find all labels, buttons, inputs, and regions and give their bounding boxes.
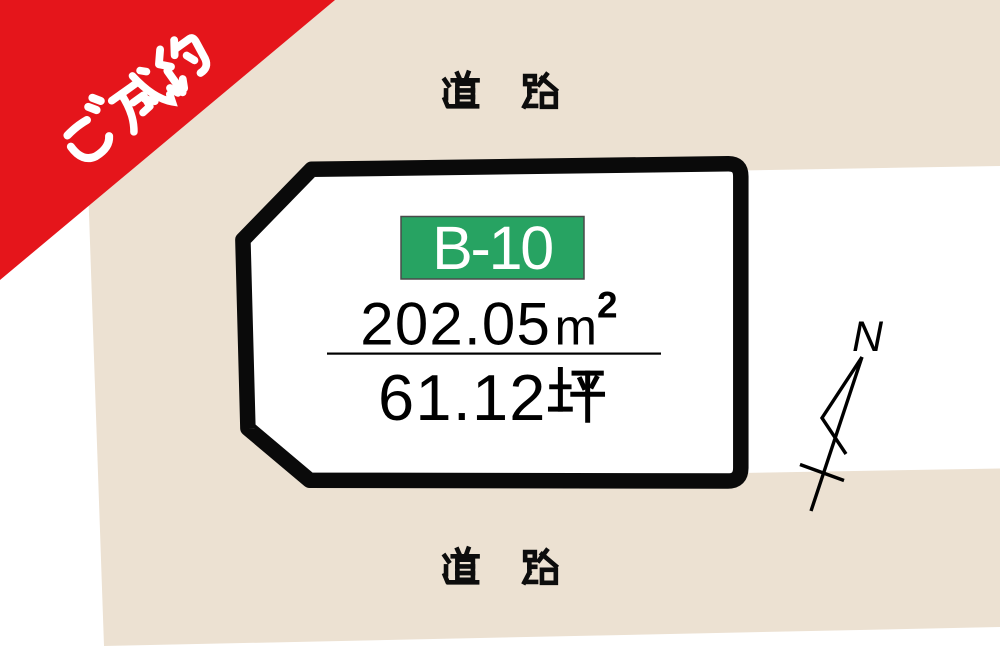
svg-text:61.12: 61.12: [378, 361, 547, 434]
svg-text:m: m: [555, 299, 597, 356]
svg-text:B-10: B-10: [432, 214, 552, 282]
svg-text:202.05: 202.05: [360, 291, 551, 358]
svg-text:N: N: [852, 313, 884, 361]
svg-text:2: 2: [597, 285, 618, 326]
